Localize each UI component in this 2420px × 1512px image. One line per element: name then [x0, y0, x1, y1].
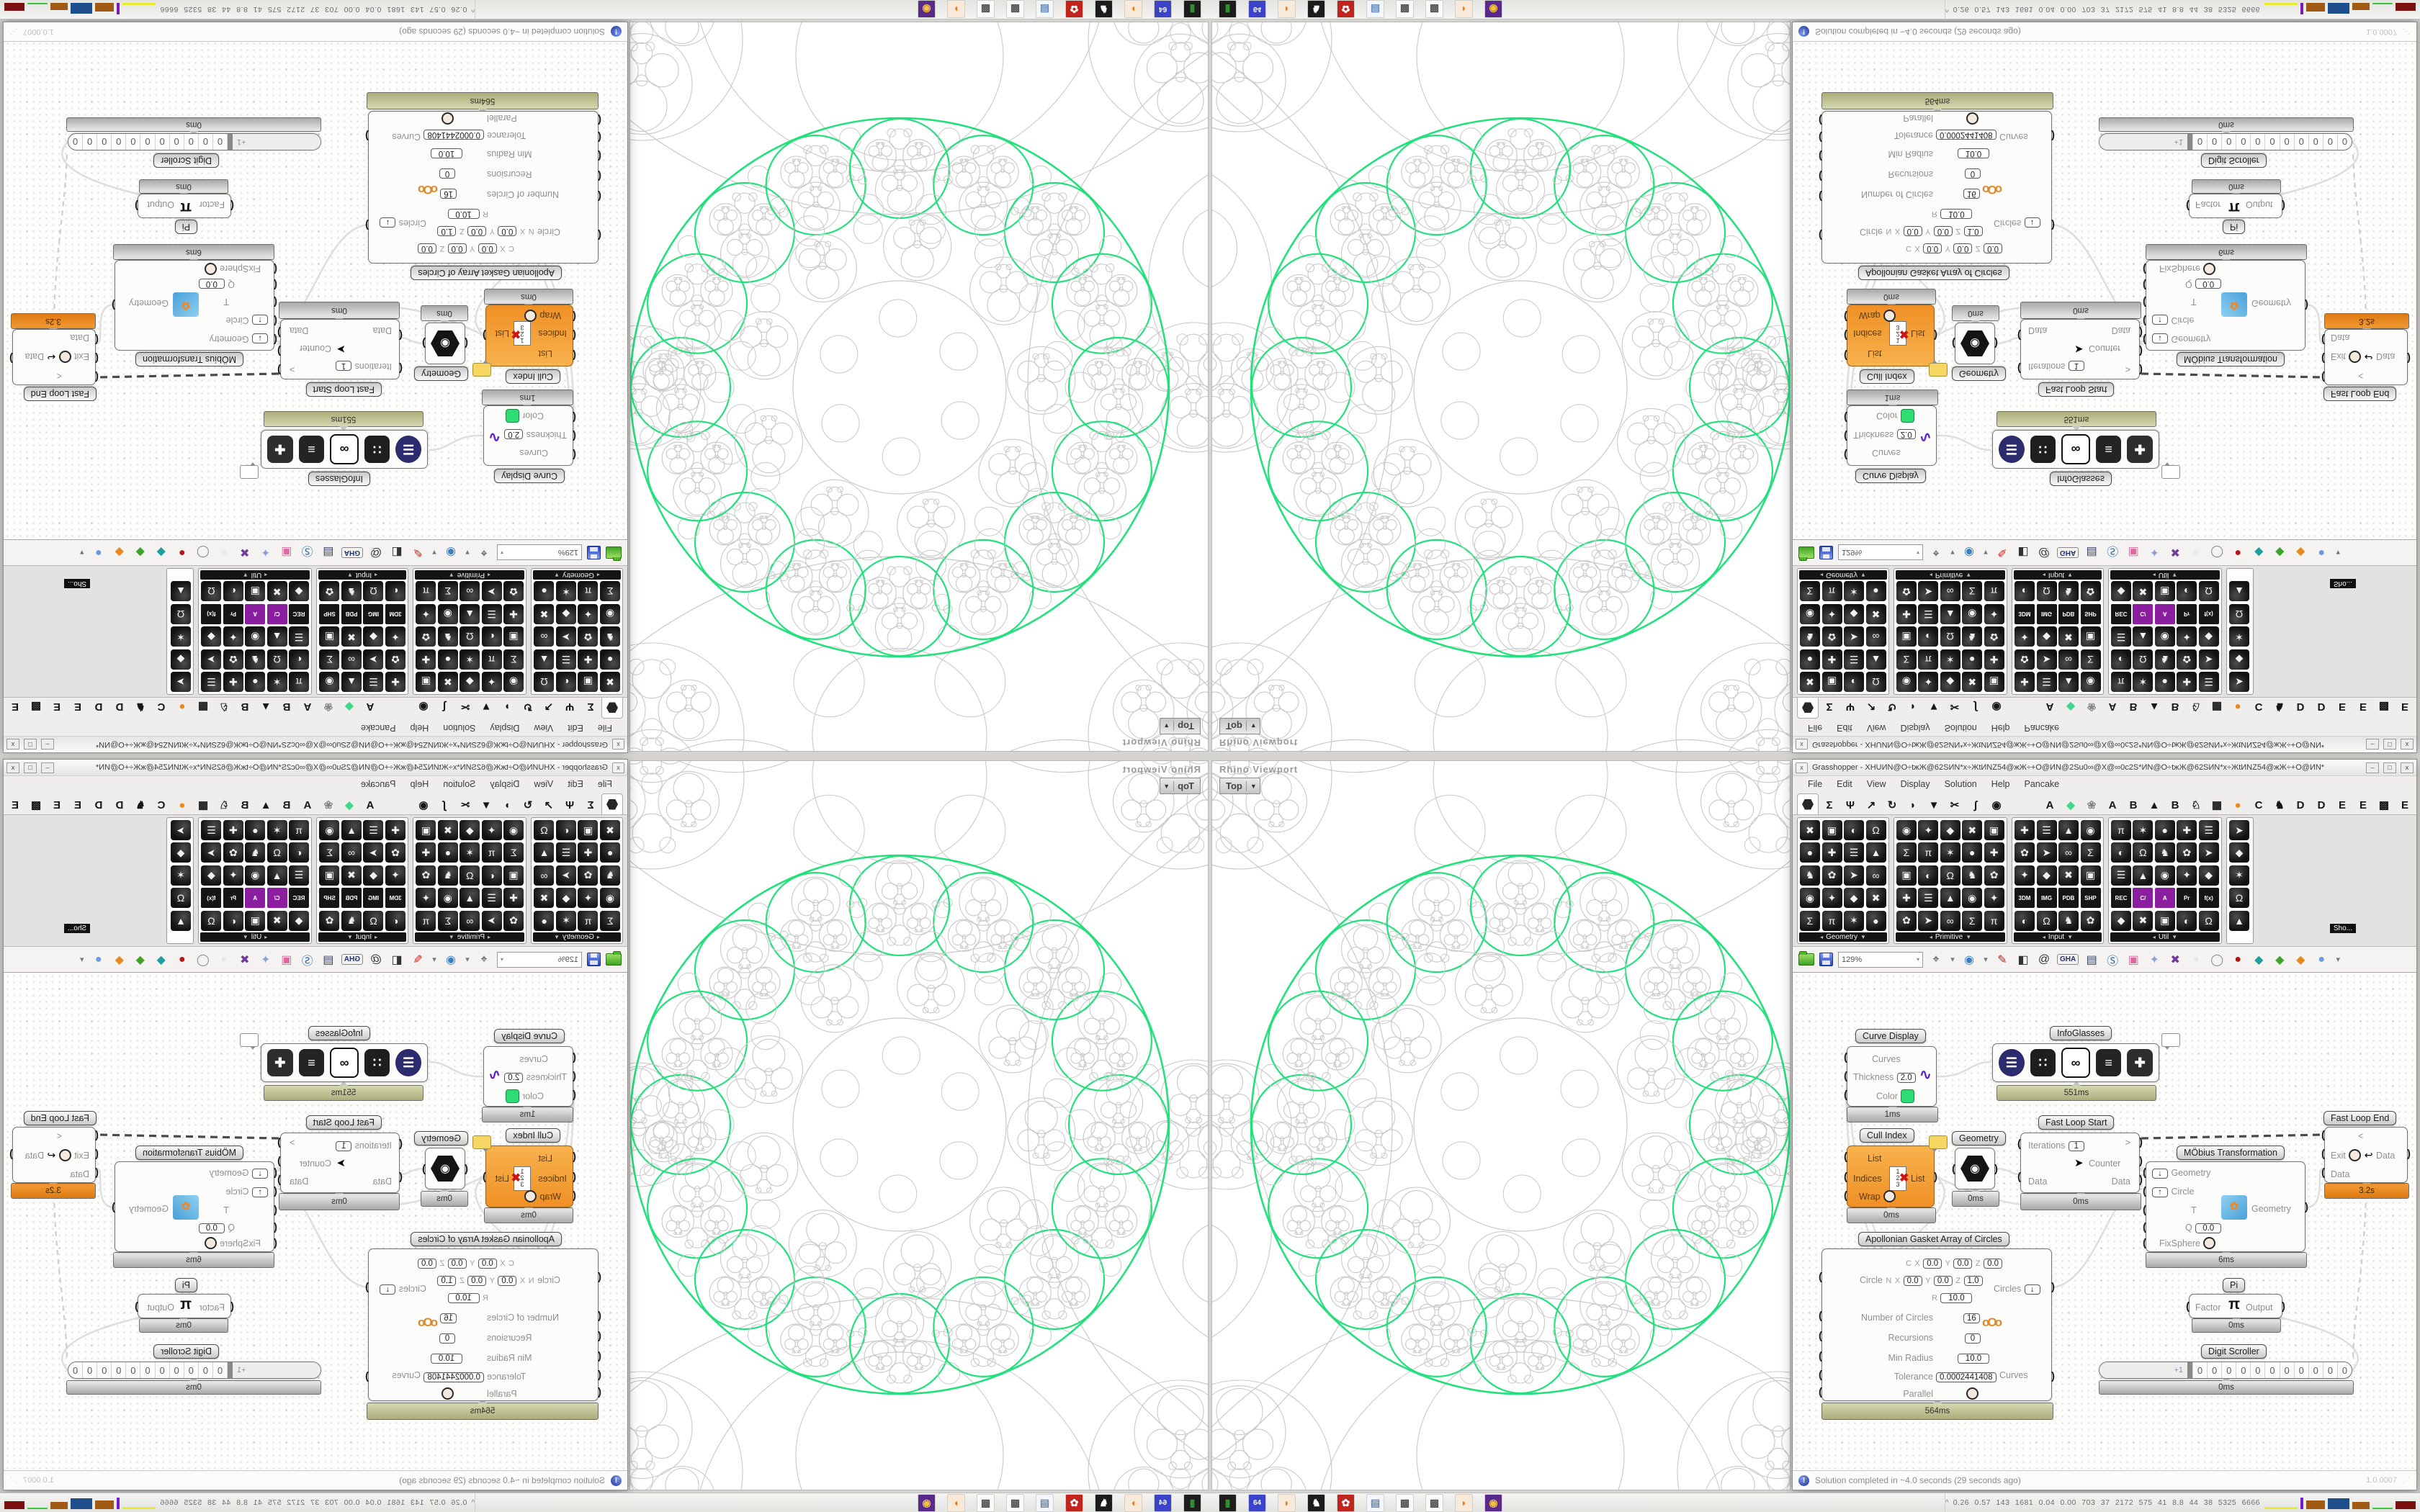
pin-orange-icon[interactable]: ◆: [2293, 546, 2308, 560]
value-box[interactable]: 10.0: [448, 209, 480, 219]
mail-icon[interactable]: @: [2036, 953, 2052, 966]
component-icon[interactable]: ∞: [1940, 911, 1960, 931]
node-infoglasses[interactable]: ☰ ∷ ∞ ≡ ✚: [1992, 430, 2159, 469]
ribbon-tab-display[interactable]: ◉: [1986, 698, 2007, 716]
value-box[interactable]: 0.0: [418, 1259, 436, 1269]
node-label-mobius[interactable]: MÖbius Transformation: [135, 352, 243, 366]
node-fast-loop-end[interactable]: ( ( ( ) < Exit ↩ Data Data: [12, 329, 96, 385]
node-pi[interactable]: ( ) Factor π Output: [138, 1294, 231, 1318]
exit-toggle[interactable]: [2349, 351, 2361, 363]
sphere-white-icon[interactable]: ●: [2188, 953, 2204, 966]
component-icon[interactable]: ➤: [2199, 842, 2219, 863]
output-port[interactable]: ): [277, 326, 281, 338]
ribbon-tab-tab-c[interactable]: C: [2249, 796, 2269, 814]
ribbon-tab-intersect[interactable]: ✂: [1945, 796, 1965, 814]
taskbar-app-maze-1[interactable]: ▩: [1006, 1494, 1024, 1512]
input-port[interactable]: (: [1844, 1051, 1847, 1063]
ribbon-tab-tab-d2[interactable]: D: [89, 698, 109, 716]
zoom-level-select[interactable]: 129% ▾: [497, 545, 582, 561]
ribbon-tab-tab-mountain[interactable]: ▲: [256, 796, 276, 814]
menu-pancake[interactable]: Pancake: [354, 778, 403, 791]
component-icon[interactable]: ✖: [1962, 672, 1982, 692]
component-icon[interactable]: ▲: [2229, 581, 2249, 601]
component-icon[interactable]: ✖: [1800, 672, 1820, 692]
input-port[interactable]: (: [1819, 131, 1822, 143]
caret[interactable]: ▾: [464, 955, 471, 964]
ribbon-tab-transform[interactable]: ∫: [434, 796, 454, 814]
caret[interactable]: ▾: [2334, 548, 2341, 557]
component-icon[interactable]: ∞: [2058, 649, 2079, 670]
component-icon[interactable]: ➤: [1844, 865, 1864, 886]
component-icon[interactable]: ▲: [2133, 626, 2153, 647]
digit-cell[interactable]: 0: [97, 134, 112, 150]
node-fast-loop-end[interactable]: ( ( ( ) < Exit ↩ Data Data: [2324, 329, 2408, 385]
ribbon-tab-tab-knot[interactable]: ❀: [318, 796, 339, 814]
open-file-icon[interactable]: [606, 953, 622, 966]
color-swatch[interactable]: [506, 1089, 519, 1103]
pin-teal-icon[interactable]: ◆: [153, 953, 169, 967]
value-box[interactable]: 0.0: [467, 1276, 486, 1286]
input-port[interactable]: (: [274, 315, 277, 327]
input-port[interactable]: (: [1844, 1151, 1847, 1163]
component-icon[interactable]: ♞: [341, 911, 362, 931]
ribbon-tab-surface[interactable]: ◗: [1903, 796, 1923, 814]
ribbon-group-label[interactable]: ◂Input▼: [318, 570, 406, 580]
ribbon-tab-tab-d2[interactable]: D: [2311, 698, 2331, 716]
viewport-tab-top[interactable]: Top ▼: [1160, 718, 1201, 734]
node-label-cull-index[interactable]: Cull Index: [506, 1128, 560, 1143]
component-icon[interactable]: ✦: [1918, 820, 1938, 840]
ribbon-tab-params[interactable]: [601, 793, 623, 814]
component-icon[interactable]: ▲: [1940, 604, 1960, 624]
ribbon-tab-tab-bird[interactable]: ♞: [130, 796, 151, 814]
ribbon-tab-tab-b2[interactable]: B: [235, 698, 255, 716]
ribbon-tab-vector[interactable]: ↗: [539, 698, 559, 716]
digit-cell[interactable]: 0: [2250, 134, 2264, 150]
taskbar-app-maze-2[interactable]: ▩: [977, 1494, 995, 1512]
node-label-cull-index[interactable]: Cull Index: [506, 369, 560, 384]
component-icon[interactable]: A: [245, 604, 265, 624]
component-icon[interactable]: 3DM: [385, 604, 405, 624]
input-port[interactable]: (: [95, 1148, 99, 1160]
node-geometry[interactable]: ( ) ◉: [1955, 323, 1995, 364]
component-icon[interactable]: ▣: [2155, 581, 2175, 601]
ribbon-tab-surface[interactable]: ◗: [497, 796, 517, 814]
component-icon[interactable]: ◐: [1918, 626, 1938, 647]
component-icon[interactable]: ◉: [2081, 820, 2101, 840]
ribbon-tab-tab-knot[interactable]: ❀: [318, 698, 339, 716]
component-icon[interactable]: ✿: [1896, 911, 1917, 931]
component-icon[interactable]: ✦: [223, 626, 243, 647]
component-icon[interactable]: Pr: [2177, 604, 2197, 624]
menu-help[interactable]: Help: [404, 721, 436, 734]
node-label-apollonian[interactable]: Apollonian Gasket Array of Circles: [411, 266, 562, 280]
sketch-brush-icon[interactable]: ✎: [1994, 953, 2010, 967]
component-icon[interactable]: ✚: [1896, 604, 1917, 624]
output-port[interactable]: ): [277, 345, 281, 357]
component-icon[interactable]: ✚: [416, 842, 436, 863]
exit-toggle[interactable]: [59, 1149, 71, 1161]
input-port[interactable]: (: [399, 1138, 403, 1150]
output-port[interactable]: ): [9, 1148, 13, 1160]
menu-pancake[interactable]: Pancake: [2017, 778, 2066, 791]
component-icon[interactable]: ▣: [1822, 820, 1842, 840]
notes-icon[interactable]: ▤: [321, 953, 336, 967]
input-port[interactable]: (: [598, 190, 601, 202]
ribbon-tab-tab-mountain[interactable]: ▲: [2144, 796, 2164, 814]
save-file-icon[interactable]: [587, 546, 601, 559]
output-port[interactable]: ): [2051, 130, 2055, 142]
list-icon[interactable]: ☰: [395, 1049, 421, 1076]
component-icon[interactable]: ✚: [1822, 649, 1842, 670]
ribbon-tab-tab-dot[interactable]: ●: [172, 796, 192, 814]
taskbar-app-emulator[interactable]: ▮: [1219, 1, 1237, 19]
component-icon[interactable]: ☰: [1918, 604, 1938, 624]
color-swatch[interactable]: [1901, 409, 1914, 423]
component-icon[interactable]: ◉: [503, 672, 524, 692]
component-icon[interactable]: ☰: [2111, 626, 2131, 647]
input-port[interactable]: (: [573, 449, 576, 461]
chevron-down-icon[interactable]: ▾: [1917, 549, 1919, 556]
component-icon[interactable]: Pr: [2177, 888, 2197, 908]
ribbon-tab-curve[interactable]: ↻: [518, 796, 538, 814]
notes-icon[interactable]: ▤: [2084, 953, 2099, 967]
value-box[interactable]: 16: [440, 1313, 457, 1323]
node-label-fast-loop-end[interactable]: Fast Loop End: [24, 387, 97, 401]
component-icon[interactable]: ➤: [556, 865, 576, 886]
component-icon[interactable]: Σ: [1800, 911, 1820, 931]
open-file-icon[interactable]: [606, 546, 622, 559]
input-port[interactable]: (: [598, 131, 601, 143]
menu-display[interactable]: Display: [483, 778, 526, 791]
node-apollonian-gasket[interactable]: ( ( ( ( ( ( ) ) C X 0.0 Y 0.0 Z 0.0 Circ…: [368, 111, 599, 264]
component-icon[interactable]: ✶: [1844, 581, 1864, 601]
taskbar-app-owl[interactable]: ◉: [1484, 1, 1502, 19]
taskbar-app-firefox-2[interactable]: ◗: [947, 1, 965, 19]
digit-cell[interactable]: 0: [2236, 134, 2250, 150]
ribbon-tab-vector[interactable]: ↗: [1861, 698, 1881, 716]
component-icon[interactable]: ✖: [1866, 604, 1886, 624]
pin-green-icon[interactable]: ◆: [133, 953, 148, 967]
up-arrow-box[interactable]: ↑: [2152, 315, 2168, 325]
component-icon[interactable]: ◉: [1962, 604, 1982, 624]
output-port[interactable]: ): [365, 219, 369, 231]
ribbon-tab-tab-e3[interactable]: E: [2395, 796, 2415, 814]
list-icon[interactable]: ☰: [1999, 1049, 2025, 1076]
sketch-brush-icon[interactable]: ✎: [410, 546, 426, 560]
component-icon[interactable]: A: [245, 888, 265, 908]
component-icon[interactable]: ♞: [600, 626, 620, 647]
component-icon[interactable]: ✦: [2015, 626, 2035, 647]
scroller-thumb[interactable]: [228, 134, 233, 150]
color-swatch[interactable]: [506, 409, 519, 423]
ribbon-tab-tab-grid[interactable]: ▦: [2207, 698, 2227, 716]
component-icon[interactable]: ✦: [223, 865, 243, 886]
pin-orange-icon[interactable]: ◆: [2293, 953, 2308, 967]
thickness-value[interactable]: 2.0: [1897, 1073, 1916, 1083]
resize-grip[interactable]: ⋰: [9, 1477, 17, 1485]
maximize-icon[interactable]: □: [24, 739, 37, 750]
digit-cell[interactable]: 0: [83, 1362, 97, 1378]
menu-solution[interactable]: Solution: [1938, 721, 1984, 734]
component-icon[interactable]: ☰: [201, 820, 221, 840]
component-icon[interactable]: ◐: [289, 649, 309, 670]
output-port[interactable]: ): [1934, 1171, 1937, 1183]
component-icon[interactable]: ✿: [578, 626, 599, 647]
component-icon[interactable]: ✖: [1962, 820, 1982, 840]
node-curve-display[interactable]: ( ( ( Curves Thickness 2.0 ∿ Color: [1847, 1046, 1937, 1107]
node-infoglasses[interactable]: ☰ ∷ ∞ ≡ ✚: [261, 430, 428, 469]
component-icon[interactable]: ✿: [1896, 581, 1917, 601]
ribbon-tab-display[interactable]: ◉: [413, 698, 434, 716]
component-icon[interactable]: ▣: [1984, 672, 2004, 692]
input-port[interactable]: (: [573, 1070, 576, 1082]
fixsphere-toggle[interactable]: [205, 263, 217, 275]
node-label-fast-loop-start[interactable]: Fast Loop Start: [306, 1115, 382, 1130]
value-box[interactable]: 0.0: [1984, 243, 2002, 253]
component-icon[interactable]: ➤: [201, 649, 221, 670]
sphere-white-icon[interactable]: ●: [2188, 546, 2204, 559]
component-icon[interactable]: ∞: [341, 649, 362, 670]
grasshopper-titlebar[interactable]: x Grasshopper - XHUИN@O÷tжЖ@62SИN*x÷ЖtИN…: [1793, 736, 2416, 752]
archive-icon[interactable]: ≡: [299, 1049, 325, 1076]
ribbon-tab-tab-e1[interactable]: E: [68, 698, 88, 716]
node-label-digit-scroller[interactable]: Digit Scroller: [153, 1344, 219, 1359]
component-icon[interactable]: ☰: [2199, 672, 2219, 692]
component-icon[interactable]: ✦: [385, 865, 405, 886]
component-icon[interactable]: ●: [1800, 842, 1820, 863]
ribbon-tab-vector[interactable]: ↗: [539, 796, 559, 814]
component-icon[interactable]: ◉: [1896, 672, 1917, 692]
component-icon[interactable]: ▲: [2058, 820, 2079, 840]
package-icon[interactable]: ▣: [279, 953, 295, 967]
archive-icon[interactable]: ≡: [2096, 436, 2122, 463]
component-icon[interactable]: ◆: [171, 649, 191, 670]
node-fast-loop-end[interactable]: ( ( ( ) < Exit ↩ Data Data: [12, 1127, 96, 1183]
node-cull-index[interactable]: ( ( ( ) List Indices 123 ✖ List Wrap: [485, 1146, 573, 1207]
comment-bubble-icon[interactable]: [240, 1033, 259, 1047]
component-icon[interactable]: ▲: [341, 672, 362, 692]
node-cull-index[interactable]: ( ( ( ) List Indices 123 ✖ List Wrap: [1847, 1146, 1935, 1207]
component-icon[interactable]: ●: [2155, 672, 2175, 692]
ribbon-tab-tab-grid[interactable]: ▦: [2207, 796, 2227, 814]
component-icon[interactable]: ▲: [460, 888, 480, 908]
component-icon[interactable]: ➤: [1918, 911, 1938, 931]
ribbon-tab-sets[interactable]: Ψ: [560, 796, 580, 814]
component-icon[interactable]: SHP: [320, 888, 340, 908]
input-port[interactable]: (: [274, 1237, 277, 1249]
input-port[interactable]: (: [598, 1310, 601, 1322]
comment-bubble-icon[interactable]: [240, 465, 259, 479]
component-icon[interactable]: 3DM: [2015, 888, 2035, 908]
input-port[interactable]: (: [399, 362, 403, 374]
component-icon[interactable]: ▣: [416, 820, 436, 840]
component-icon[interactable]: ◉: [245, 865, 265, 886]
component-icon[interactable]: ◐: [385, 911, 405, 931]
node-label-fast-loop-start[interactable]: Fast Loop Start: [2038, 382, 2114, 397]
rhino-viewport[interactable]: Rhino Viewport Top ▼: [629, 22, 1209, 752]
caret[interactable]: ▾: [79, 955, 86, 964]
component-icon[interactable]: ◐: [223, 581, 243, 601]
component-icon[interactable]: ✿: [223, 842, 243, 863]
ribbon-tab-tab-gem[interactable]: ◆: [2061, 796, 2081, 814]
node-label-curve-display[interactable]: Curve Display: [1855, 469, 1926, 483]
ribbon-tab-tab-a2[interactable]: A: [2102, 796, 2123, 814]
component-icon[interactable]: ✶: [1940, 842, 1960, 863]
sphere-wire-icon[interactable]: ◯: [195, 546, 211, 560]
component-icon[interactable]: ▣: [503, 865, 524, 886]
value-box[interactable]: 10.0: [448, 1293, 480, 1303]
component-icon[interactable]: Pr: [223, 604, 243, 624]
output-port[interactable]: ): [2051, 219, 2055, 231]
down-arrow-box[interactable]: ↓: [380, 1284, 395, 1295]
component-icon[interactable]: C/: [267, 888, 287, 908]
input-port[interactable]: (: [2143, 315, 2146, 327]
ribbon-tab-mesh[interactable]: ▼: [1924, 796, 1944, 814]
value-box[interactable]: 10.0: [431, 148, 462, 158]
input-port[interactable]: (: [95, 352, 99, 364]
menu-edit[interactable]: Edit: [561, 778, 590, 791]
preview-eye-icon[interactable]: ◉: [443, 953, 459, 967]
menu-help[interactable]: Help: [1985, 721, 2017, 734]
node-geometry[interactable]: ( ) ◉: [425, 1148, 465, 1189]
taskbar-app-maze-1[interactable]: ▩: [1396, 1, 1414, 19]
input-port[interactable]: (: [1844, 449, 1847, 461]
component-icon[interactable]: π: [482, 842, 502, 863]
ribbon-tab-tab-gem[interactable]: ◆: [339, 796, 359, 814]
digit-cell[interactable]: 0: [68, 1362, 83, 1378]
component-icon[interactable]: ◉: [1800, 888, 1820, 908]
component-icon[interactable]: IMG: [2037, 604, 2057, 624]
component-icon[interactable]: Ω: [171, 604, 191, 624]
component-icon[interactable]: ✦: [1984, 604, 2004, 624]
node-apollonian-gasket[interactable]: ( ( ( ( ( ( ) ) C X 0.0 Y 0.0 Z 0.0 Circ…: [1821, 111, 2052, 264]
component-icon[interactable]: ✿: [1822, 626, 1842, 647]
component-icon[interactable]: ✿: [578, 865, 599, 886]
component-icon[interactable]: ✖: [534, 604, 555, 624]
digit-cell[interactable]: 0: [184, 134, 199, 150]
digit-cell[interactable]: 0: [83, 134, 97, 150]
output-port[interactable]: ): [2407, 352, 2411, 364]
input-port[interactable]: (: [598, 114, 601, 126]
component-icon[interactable]: ♞: [2155, 649, 2175, 670]
value-box[interactable]: 0.0: [448, 1259, 467, 1269]
component-icon[interactable]: π: [1918, 649, 1938, 670]
component-icon[interactable]: ●: [1866, 911, 1886, 931]
sketch-brush-icon[interactable]: ✎: [410, 953, 426, 967]
close-icon[interactable]: x: [1796, 762, 1808, 773]
component-icon[interactable]: Ω: [171, 888, 191, 908]
node-label-pi[interactable]: Pi: [2223, 220, 2245, 234]
wrap-toggle[interactable]: [524, 1190, 537, 1202]
zoom-extents-icon[interactable]: ⌖: [1928, 546, 1944, 559]
door-icon[interactable]: ◧: [2015, 953, 2031, 967]
rhino-viewport[interactable]: Rhino Viewport Top ▼: [1211, 760, 1791, 1490]
component-icon[interactable]: ▣: [1896, 626, 1917, 647]
component-icon[interactable]: Ω: [1866, 672, 1886, 692]
digit-cell[interactable]: 0: [156, 1362, 170, 1378]
component-icon[interactable]: ✦: [2015, 865, 2035, 886]
component-icon[interactable]: ✿: [503, 911, 524, 931]
input-port[interactable]: (: [573, 1171, 576, 1183]
digit-cell[interactable]: 0: [2192, 134, 2207, 150]
input-port[interactable]: (: [2143, 333, 2146, 346]
wires-icon[interactable]: ✖: [237, 546, 253, 560]
component-icon[interactable]: ◉: [1896, 820, 1917, 840]
component-icon[interactable]: ∞: [2058, 842, 2079, 863]
component-icon[interactable]: ✿: [2081, 911, 2101, 931]
ribbon-tab-params[interactable]: [1797, 793, 1819, 814]
component-icon[interactable]: ◐: [2111, 842, 2131, 863]
ribbon-tab-display[interactable]: ◉: [413, 796, 434, 814]
component-icon[interactable]: REC: [289, 888, 309, 908]
component-icon[interactable]: ▣: [245, 581, 265, 601]
output-port[interactable]: ): [2305, 299, 2308, 311]
component-icon[interactable]: ☰: [201, 672, 221, 692]
component-icon[interactable]: Ω: [1940, 626, 1960, 647]
ribbon-tab-tab-e1[interactable]: E: [2332, 698, 2352, 716]
component-icon[interactable]: Ω: [267, 649, 287, 670]
menu-view[interactable]: View: [527, 778, 560, 791]
input-port[interactable]: (: [598, 1369, 601, 1381]
component-icon[interactable]: Σ: [438, 911, 458, 931]
component-icon[interactable]: ✖: [600, 672, 620, 692]
preview-eye-icon[interactable]: ◉: [443, 546, 459, 560]
component-icon[interactable]: ✖: [2133, 581, 2153, 601]
zoom-level-select[interactable]: 129% ▾: [1838, 545, 1923, 561]
component-icon[interactable]: ✖: [2058, 626, 2079, 647]
ribbon-tab-transform[interactable]: ∫: [1966, 698, 1986, 716]
ribbon-tab-tab-d1[interactable]: D: [2290, 796, 2311, 814]
component-icon[interactable]: ✚: [2177, 672, 2197, 692]
taskbar-app-notes[interactable]: ▤: [1366, 1, 1384, 19]
component-icon[interactable]: ◐: [482, 626, 502, 647]
taskbar-app-firefox-2[interactable]: ◗: [1455, 1, 1473, 19]
color-swatch[interactable]: [1901, 1089, 1914, 1103]
component-icon[interactable]: ◐: [556, 820, 576, 840]
input-port[interactable]: (: [274, 263, 277, 275]
taskbar-app-firefox-2[interactable]: ◗: [947, 1494, 965, 1512]
ribbon-group-label[interactable]: ◂Geometry▼: [1799, 570, 1887, 580]
component-icon[interactable]: ✖: [2058, 865, 2079, 886]
caret[interactable]: ▾: [431, 955, 438, 964]
value-box[interactable]: 0: [439, 1333, 455, 1344]
ribbon-tab-surface[interactable]: ◗: [497, 698, 517, 716]
component-icon[interactable]: Σ: [1800, 581, 1820, 601]
taskbar-app-owl[interactable]: ◉: [918, 1, 936, 19]
component-icon[interactable]: ✿: [320, 911, 340, 931]
component-icon[interactable]: ◐: [2177, 911, 2197, 931]
maximize-icon[interactable]: □: [2383, 739, 2396, 750]
ribbon-tab-maths[interactable]: Σ: [1819, 698, 1839, 716]
ribbon-group-label[interactable]: ◂Util▼: [200, 570, 310, 580]
component-icon[interactable]: ●: [600, 842, 620, 863]
output-port[interactable]: ): [277, 1155, 281, 1167]
input-port[interactable]: (: [1844, 310, 1847, 323]
chevron-up-icon[interactable]: ^: [1945, 6, 1949, 14]
ribbon-tab-transform[interactable]: ∫: [1966, 796, 1986, 814]
component-icon[interactable]: ✶: [556, 911, 576, 931]
component-icon[interactable]: ●: [438, 649, 458, 670]
component-icon[interactable]: ✚: [503, 604, 524, 624]
viewport-tab-top[interactable]: Top ▼: [1219, 718, 1260, 734]
menu-view[interactable]: View: [1860, 778, 1893, 791]
component-icon[interactable]: ✿: [416, 626, 436, 647]
component-icon[interactable]: f(x): [2199, 888, 2219, 908]
component-icon[interactable]: REC: [2111, 604, 2131, 624]
ribbon-tab-tab-e2[interactable]: E: [2353, 698, 2373, 716]
value-box[interactable]: 0.0: [1934, 226, 1953, 236]
